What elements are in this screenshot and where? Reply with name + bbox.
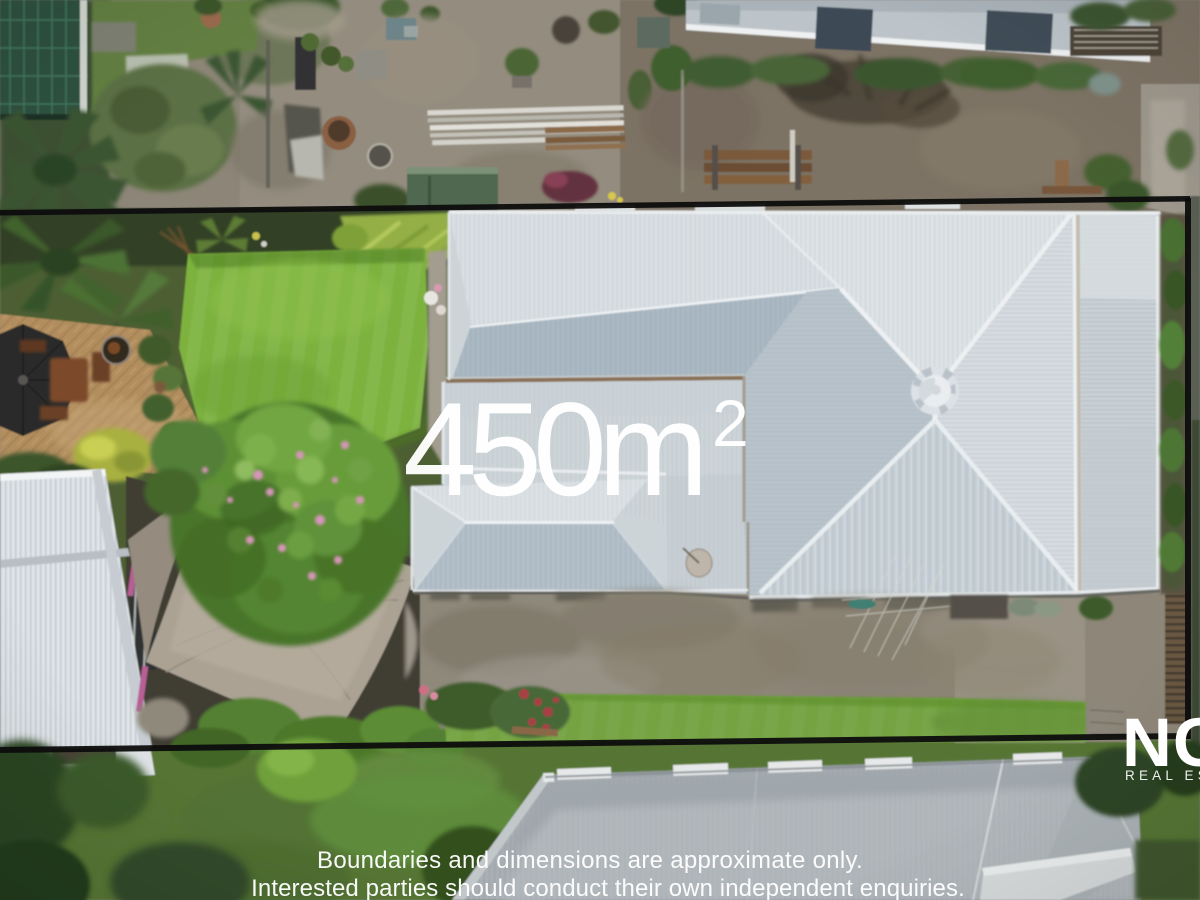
svg-text:450m: 450m <box>403 376 701 524</box>
svg-text:Boundaries and dimensions are: Boundaries and dimensions are approximat… <box>317 847 863 874</box>
svg-text:2: 2 <box>712 386 749 460</box>
svg-text:Interested parties should cond: Interested parties should conduct their … <box>251 875 965 900</box>
svg-text:REAL EST: REAL EST <box>1125 768 1200 783</box>
